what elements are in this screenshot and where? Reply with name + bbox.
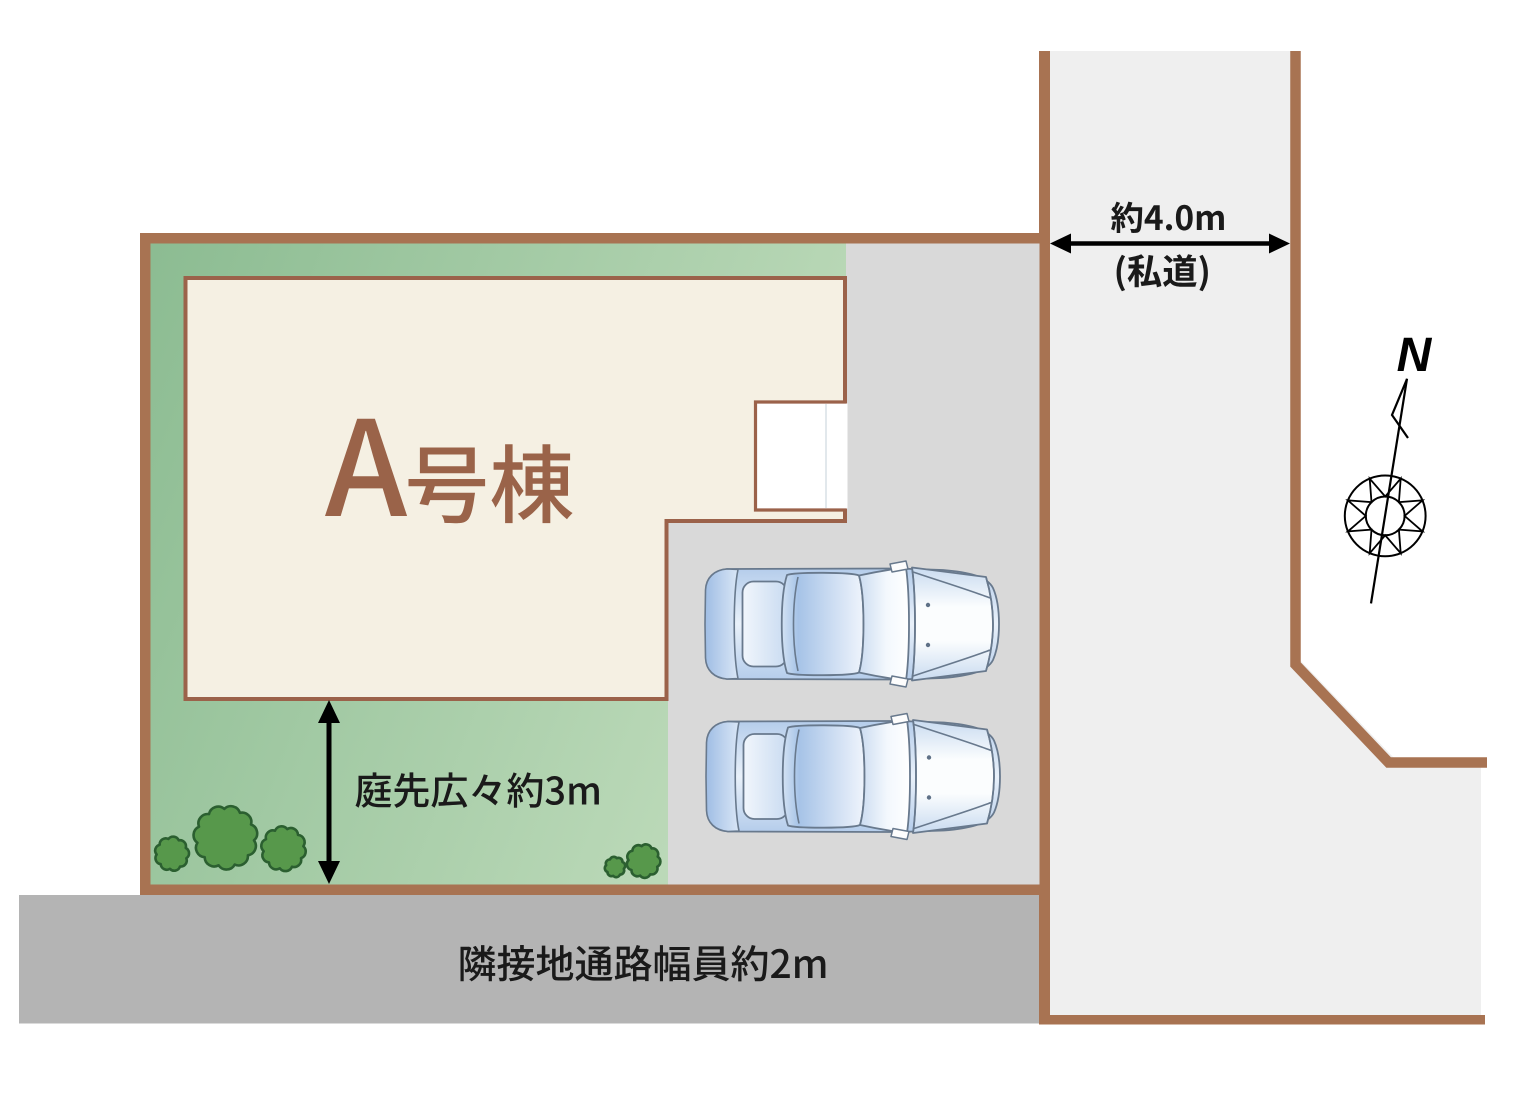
svg-text:N: N [1397,329,1433,382]
